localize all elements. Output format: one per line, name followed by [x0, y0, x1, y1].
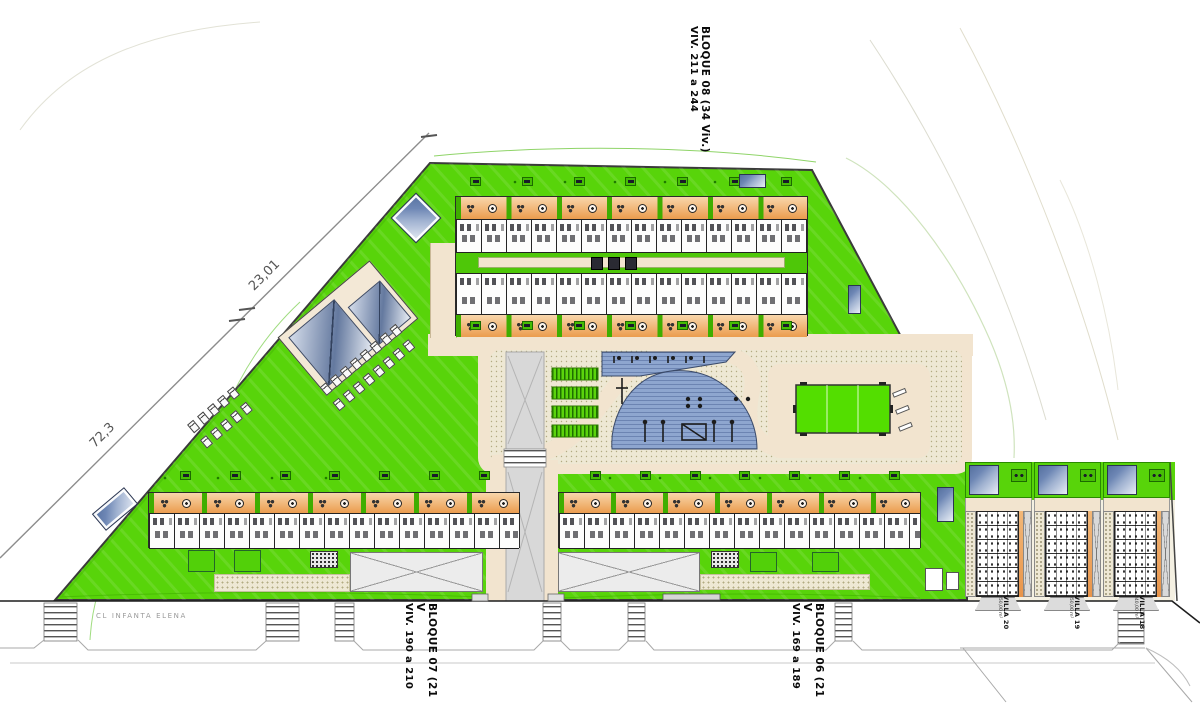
planter-dot	[845, 474, 848, 477]
plant-icon	[766, 204, 775, 213]
planter-dot	[335, 474, 338, 477]
utility-room	[711, 551, 739, 568]
planter-dot	[484, 474, 487, 477]
planter-row-b06	[590, 471, 900, 480]
stair-core-icon	[591, 257, 603, 270]
planter-icon	[590, 471, 601, 480]
terrace-furniture-group	[371, 499, 402, 508]
terrace-furniture-group	[621, 499, 652, 508]
parasol-table-icon	[738, 204, 747, 213]
villa-18-label: VILLA 18 340,00 m²	[1133, 595, 1146, 629]
planter-icon	[729, 321, 740, 330]
central-corridor	[456, 253, 807, 273]
planter-dot	[645, 474, 648, 477]
planter-icon	[470, 321, 481, 330]
parasol-table-icon	[688, 204, 697, 213]
planter-dot	[527, 324, 530, 327]
terrace-icons-row	[559, 493, 920, 513]
planter-icon	[180, 471, 191, 480]
curb-lines	[0, 640, 1192, 702]
sun-lounger-icon	[207, 403, 220, 417]
apartment-units-row	[559, 513, 920, 549]
service-box	[946, 572, 959, 590]
planter-icon	[574, 177, 585, 186]
terrace-furniture-group	[716, 204, 747, 213]
villa-body	[1103, 511, 1170, 597]
patio-garden	[750, 552, 777, 572]
terrace-furniture-group	[516, 204, 547, 213]
villa-floor-plan	[1045, 511, 1088, 597]
planter-dot	[596, 474, 599, 477]
pedestrian-crossing	[504, 449, 546, 467]
planter-icon	[789, 471, 800, 480]
parasol-table-icon	[638, 204, 647, 213]
villa-terrace	[1034, 498, 1101, 511]
sun-lounger-icon	[359, 349, 372, 363]
planter-dot	[786, 324, 789, 327]
planter-icon	[574, 321, 585, 330]
wall-segment	[663, 594, 720, 600]
terrace-furniture-group	[160, 499, 191, 508]
service-box	[925, 568, 943, 591]
bloque-06-building	[558, 492, 921, 548]
terrace-furniture-group	[566, 204, 597, 213]
villa-plot-18	[1103, 462, 1170, 601]
planter-dot	[735, 180, 738, 183]
hedge-icon	[1011, 469, 1027, 482]
planter-row-b07	[180, 471, 490, 480]
terrace-icons-row	[149, 493, 519, 513]
gravel-strip	[1103, 511, 1114, 597]
parasol-table-icon	[499, 499, 508, 508]
plant-icon	[621, 499, 630, 508]
hedge-icon	[1080, 469, 1096, 482]
hedge-icon	[1149, 469, 1165, 482]
planter-dot	[631, 180, 634, 183]
bloque-07-label: BLOQUE 07 (21 V VIV. 190 a 210	[403, 603, 438, 704]
parasol-table-icon	[591, 499, 600, 508]
planter-icon	[690, 471, 701, 480]
parasol-table-icon	[798, 499, 807, 508]
plant-icon	[666, 204, 675, 213]
sun-lounger-icon	[340, 366, 353, 380]
swimming-pool	[937, 487, 954, 522]
villa-plot-19	[1034, 462, 1101, 601]
planter-icon	[230, 471, 241, 480]
sun-lounger-icon	[197, 411, 210, 425]
sun-lounger-icon	[369, 341, 382, 355]
parasol-table-icon	[340, 499, 349, 508]
plant-icon	[318, 499, 327, 508]
bloque-07-label-line2: VIV. 190 a 210	[403, 603, 414, 704]
planter-dot	[683, 324, 686, 327]
stair-strip	[1161, 511, 1170, 597]
garage-ramp	[350, 552, 483, 592]
plant-icon	[566, 204, 575, 213]
terrace-band	[149, 493, 519, 513]
parasol-table-icon	[849, 499, 858, 508]
parasol-table-icon	[643, 499, 652, 508]
terrace-band-top	[456, 197, 807, 219]
terrace-furniture-group	[466, 204, 497, 213]
gravel-strip	[1034, 511, 1045, 597]
terrace-band	[559, 493, 920, 513]
planter-dot	[695, 474, 698, 477]
planter-dot	[186, 474, 189, 477]
planter-dot	[285, 474, 288, 477]
villa-plot-20	[965, 462, 1032, 601]
parasol-table-icon	[288, 499, 297, 508]
terrace-furniture-group	[616, 204, 647, 213]
plant-icon	[213, 499, 222, 508]
villa-20-name: VILLA 20	[1002, 595, 1010, 629]
gravel-strip	[214, 574, 350, 592]
planter-icon	[839, 471, 850, 480]
terrace-furniture-group	[266, 499, 297, 508]
apartment-units-row-south	[456, 273, 807, 315]
patio-garden	[188, 550, 215, 572]
planter-dot	[385, 474, 388, 477]
patio-garden	[234, 550, 261, 572]
terrace-furniture-group	[827, 499, 858, 508]
bloque-08-building	[455, 196, 808, 336]
terrace-furniture-group	[766, 204, 797, 213]
planter-icon	[522, 321, 533, 330]
villa-floor-plan	[976, 511, 1019, 597]
planter-dot	[527, 180, 530, 183]
planter-icon	[677, 321, 688, 330]
apartment-units-row-north	[456, 219, 807, 253]
planter-dot	[745, 474, 748, 477]
planter-icon	[479, 471, 490, 480]
plant-icon	[266, 499, 275, 508]
bloque-06-label-line1: BLOQUE 06 (21 V	[801, 603, 825, 704]
terrace-furniture-group	[477, 499, 508, 508]
apartment-units-row	[149, 513, 519, 549]
terrace-furniture-group	[879, 499, 910, 508]
gravel-strip	[965, 511, 976, 597]
plant-icon	[716, 204, 725, 213]
terrace-furniture-group	[213, 499, 244, 508]
planter-dot	[579, 180, 582, 183]
bloque-08-label-line2: VIV. 211 a 244	[688, 26, 699, 153]
planter-icon	[429, 471, 440, 480]
planter-icon	[329, 471, 340, 480]
planter-dot	[735, 324, 738, 327]
sun-lounger-icon	[349, 357, 362, 371]
plant-icon	[371, 499, 380, 508]
villa-18-name: VILLA 18	[1138, 595, 1146, 629]
parasol-table-icon	[788, 204, 797, 213]
planter-dot	[786, 180, 789, 183]
terrace-furniture-group	[569, 499, 600, 508]
bloque-08-label-line1: BLOQUE 08 (34 Viv.)	[699, 26, 711, 153]
parasol-table-icon	[538, 204, 547, 213]
villa-pool	[1038, 465, 1068, 495]
sun-lounger-icon	[330, 374, 343, 388]
bloque-07-building	[148, 492, 520, 548]
plant-icon	[776, 499, 785, 508]
villa-driveway	[1044, 597, 1090, 611]
parasol-table-icon	[446, 499, 455, 508]
swimming-pool	[739, 174, 766, 188]
stair-strip	[1023, 511, 1032, 597]
sun-lounger-icon	[217, 395, 230, 409]
planter-dot	[683, 180, 686, 183]
plant-icon	[466, 204, 475, 213]
plant-icon	[879, 499, 888, 508]
planter-icon	[739, 471, 750, 480]
planter-dot	[795, 474, 798, 477]
planter-icon	[379, 471, 390, 480]
plant-icon	[616, 204, 625, 213]
parasol-table-icon	[182, 499, 191, 508]
planter-icon	[889, 471, 900, 480]
bloque-07-label-line1: BLOQUE 07 (21 V	[414, 603, 438, 704]
terrace-furniture-group	[776, 499, 807, 508]
planter-dot	[235, 474, 238, 477]
planter-icon	[677, 177, 688, 186]
villa-body	[1034, 511, 1101, 597]
terrace-furniture-group	[672, 499, 703, 508]
plant-icon	[477, 499, 486, 508]
planter-dot	[476, 180, 479, 183]
villa-19-label: VILLA 19 350,00 m²	[1068, 595, 1081, 629]
plant-icon	[160, 499, 169, 508]
villa-terrace	[1103, 498, 1170, 511]
planter-dot	[894, 474, 897, 477]
plant-icon	[672, 499, 681, 508]
stair-core-icon	[608, 257, 620, 270]
street-name-label: CL INFANTA ELENA	[96, 612, 187, 620]
planter-icon	[280, 471, 291, 480]
planter-dot	[476, 324, 479, 327]
central-access-road	[504, 352, 546, 601]
terrace-furniture-group	[724, 499, 755, 508]
planter-icon	[625, 177, 636, 186]
villa-20-label: VILLA 20 350,00 m²	[997, 595, 1010, 629]
parasol-table-icon	[235, 499, 244, 508]
planter-icon	[781, 177, 792, 186]
swimming-pool	[848, 285, 861, 314]
villa-pool	[969, 465, 999, 495]
utility-room	[310, 551, 338, 568]
gravel-strip	[700, 574, 870, 590]
plant-icon	[569, 499, 578, 508]
stair-core-icon	[625, 257, 637, 270]
parasol-table-icon	[901, 499, 910, 508]
parasol-table-icon	[588, 204, 597, 213]
terrace-furniture-group	[318, 499, 349, 508]
planter-icon	[640, 471, 651, 480]
stair-strip	[1092, 511, 1101, 597]
bloque-06-label: BLOQUE 06 (21 V VIV. 169 a 189	[790, 603, 825, 704]
bloque-08-label: BLOQUE 08 (34 Viv.) VIV. 211 a 244	[688, 26, 711, 153]
terrace-furniture-group	[666, 204, 697, 213]
planter-icon	[781, 321, 792, 330]
plant-icon	[516, 204, 525, 213]
planter-icon	[522, 177, 533, 186]
parasol-table-icon	[746, 499, 755, 508]
planter-icon	[625, 321, 636, 330]
site-plan-canvas: BLOQUE 08 (34 Viv.) VIV. 211 a 244 BLOQU…	[0, 0, 1200, 704]
planter-dot	[579, 324, 582, 327]
villa-floor-plan	[1114, 511, 1157, 597]
plant-icon	[724, 499, 733, 508]
villa-body	[965, 511, 1032, 597]
sun-lounger-icon	[379, 332, 392, 346]
bloque-06-label-line2: VIV. 169 a 189	[790, 603, 801, 704]
walkway-strip	[430, 243, 457, 338]
villa-terrace	[965, 498, 1032, 511]
planter-icon	[470, 177, 481, 186]
villa-pool	[1107, 465, 1137, 495]
garage-ramp	[558, 552, 700, 592]
patio-garden	[812, 552, 839, 572]
plant-icon	[827, 499, 836, 508]
villa-19-name: VILLA 19	[1073, 595, 1081, 629]
planter-row-b08-bottom	[470, 321, 792, 330]
plant-icon	[424, 499, 433, 508]
parasol-table-icon	[488, 204, 497, 213]
planter-dot	[435, 474, 438, 477]
parasol-table-icon	[694, 499, 703, 508]
planter-dot	[631, 324, 634, 327]
parasol-table-icon	[393, 499, 402, 508]
terrace-icons-row	[456, 197, 807, 219]
terrace-furniture-group	[424, 499, 455, 508]
